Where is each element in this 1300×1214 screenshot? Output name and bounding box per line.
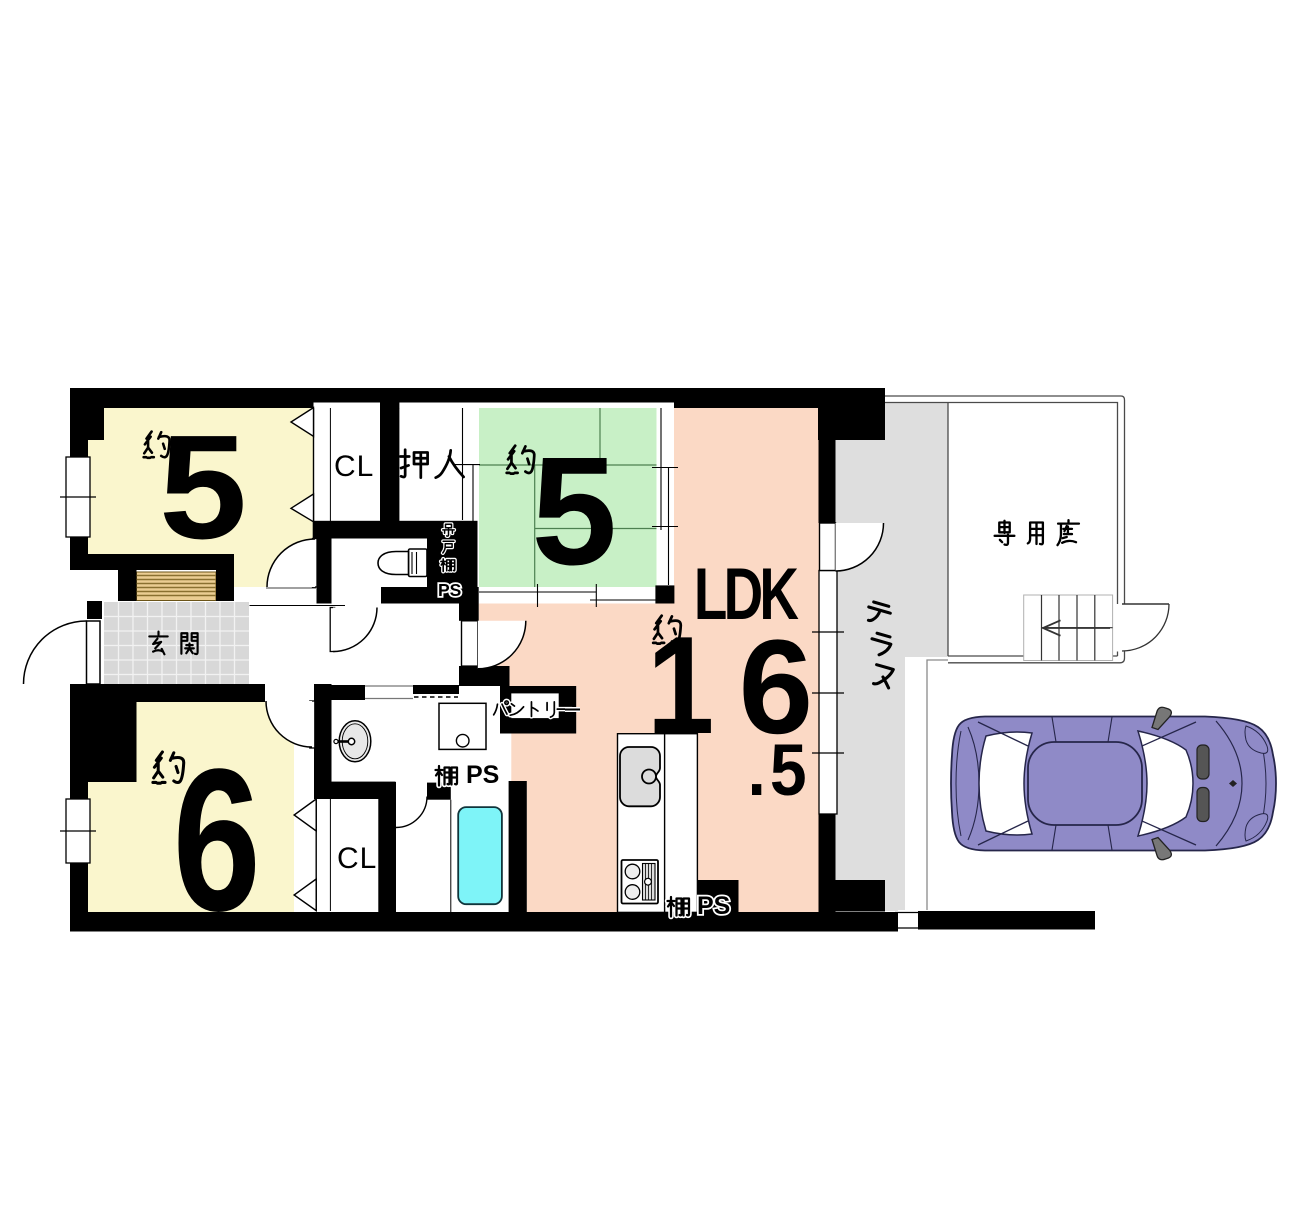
svg-text:5: 5 [531,425,617,597]
svg-text:6: 6 [173,726,261,953]
svg-text:.5: .5 [748,729,811,811]
svg-text:CL: CL [334,450,374,483]
svg-text:PS: PS [697,892,730,920]
svg-text:PS: PS [466,761,499,789]
svg-text:PS: PS [438,580,461,600]
svg-text:5: 5 [159,405,247,570]
svg-text:CL: CL [337,842,377,875]
svg-text:1: 1 [647,607,714,763]
